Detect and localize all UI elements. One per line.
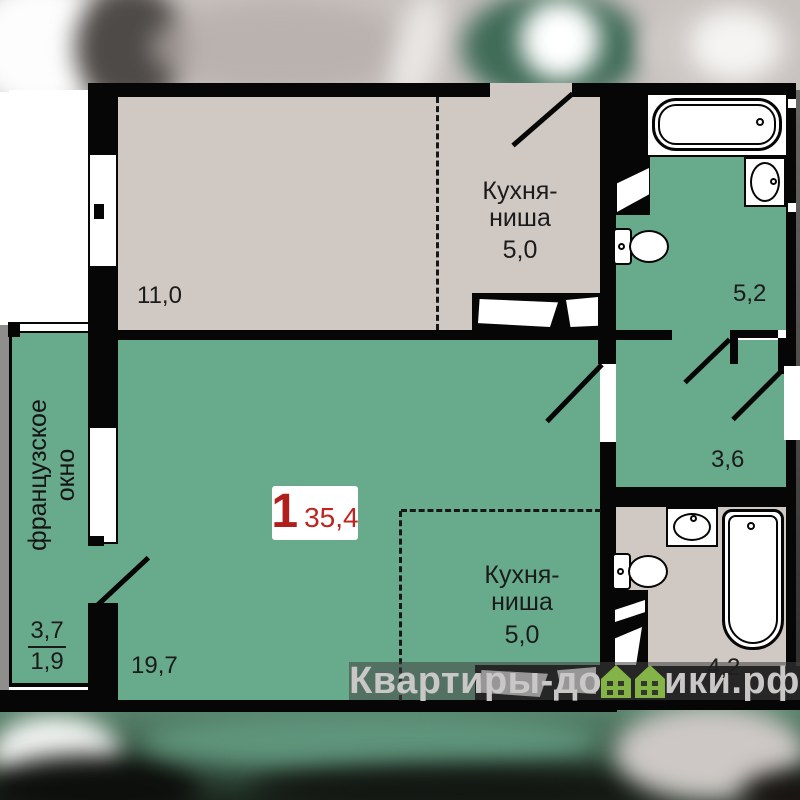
wall: [730, 330, 778, 338]
lower-room-area-label: 19,7: [131, 652, 178, 680]
exterior-area: [9, 90, 88, 322]
bottom-blur-band: [0, 710, 800, 800]
wall: [88, 338, 118, 428]
lower-kitchen-label: Кухня- ниша 5,0: [452, 562, 592, 649]
double-house-icon: [600, 663, 666, 699]
blur-blob: [250, 765, 670, 800]
toilet-dot: [618, 243, 625, 250]
french-window: [88, 426, 118, 544]
unit-summary-card: 1 35,4: [272, 486, 358, 540]
balcony-area-reduced: 1,9: [30, 648, 63, 675]
dashed-line-upper: [436, 97, 439, 330]
toilet-bowl-lower: [628, 555, 668, 588]
upper-room-area-label: 11,0: [137, 282, 182, 310]
left-edge-bar: [0, 325, 9, 690]
wall-joint: [788, 99, 796, 108]
top-blur-band: [0, 0, 800, 92]
balcony-area-full: 3,7: [28, 617, 65, 648]
counter-sink: [566, 297, 598, 327]
blur-blob: [0, 755, 200, 800]
toilet-dot: [617, 568, 624, 575]
drain-dot: [747, 522, 755, 530]
upper-door-gap: [490, 83, 572, 97]
wall: [730, 338, 738, 364]
window-cap: [88, 536, 104, 546]
balcony-corner: [8, 322, 20, 337]
wall: [600, 97, 616, 330]
midwall-opening: [672, 330, 730, 340]
kitchen-area: 5,0: [452, 622, 592, 649]
wall: [88, 83, 490, 97]
kitchen-line1: Кухня-: [452, 562, 592, 589]
blur-blob: [150, 0, 410, 92]
french-window-label: французское окно: [24, 365, 80, 585]
hall-area-label: 3,6: [711, 446, 744, 474]
dashed-line-lower-h: [401, 509, 601, 512]
kitchen-line2: ниша: [450, 205, 590, 232]
wall: [88, 90, 118, 156]
sink-lower: [666, 507, 718, 547]
wall: [88, 266, 118, 332]
wall: [616, 487, 796, 507]
counter-top: [478, 299, 558, 327]
balcony-top-glazing: [20, 322, 88, 333]
upper-bathroom-area-label: 5,2: [733, 280, 766, 308]
lower-bathroom-area-label: 4,2: [707, 654, 740, 682]
wall: [598, 330, 616, 364]
blur-blob: [140, 710, 600, 770]
window-mullion: [94, 204, 104, 219]
wall-joint: [788, 203, 796, 212]
floorplan-image: 11,0 Кухня- ниша 5,0 5,2 3,6 Кухня- ниша…: [0, 0, 800, 800]
rooms-count: 1: [271, 486, 298, 538]
sink-upper: [744, 157, 786, 207]
balcony-area-label: 3,7 1,9: [24, 617, 70, 676]
kitchen-line1: Кухня-: [450, 178, 590, 205]
kitchen-line2: ниша: [452, 589, 592, 616]
upper-kitchen-label: Кухня- ниша 5,0: [450, 178, 590, 264]
balcony-bottom-line: [9, 683, 88, 687]
faucet-dot: [770, 178, 777, 185]
faucet-dot: [690, 515, 697, 522]
wall: [0, 690, 117, 712]
entry-door-opening: [784, 366, 800, 440]
blur-blob: [520, 0, 600, 80]
toilet-bowl-upper: [629, 230, 669, 263]
bathtub-lower: [722, 509, 784, 650]
total-area: 35,4: [304, 502, 359, 534]
kitchen-area: 5,0: [450, 237, 590, 264]
watermark-prefix: Квартиры-до: [349, 662, 602, 700]
drain-dot: [756, 118, 764, 126]
blur-blob: [690, 10, 780, 80]
balcony-outer-line: [9, 330, 12, 687]
